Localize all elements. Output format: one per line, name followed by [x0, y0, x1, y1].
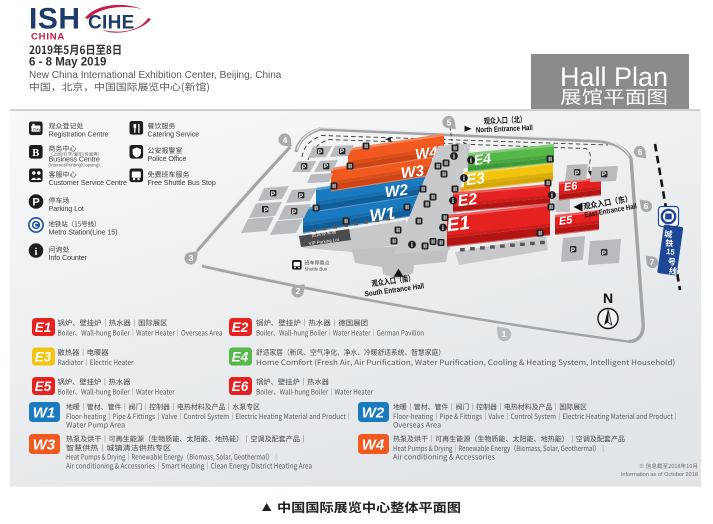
- svg-text:P: P: [575, 170, 579, 177]
- svg-text:i: i: [463, 175, 465, 182]
- svg-text:Parking Lot: Parking Lot: [49, 204, 84, 213]
- svg-text:Catering Service: Catering Service: [148, 129, 200, 138]
- svg-text:7: 7: [650, 257, 655, 267]
- svg-text:2: 2: [296, 286, 301, 296]
- svg-text:i: i: [411, 242, 413, 249]
- svg-text:Free Shuttle Bus Stop: Free Shuttle Bus Stop: [148, 178, 216, 187]
- svg-text:CHINA: CHINA: [31, 32, 65, 43]
- svg-text:E2: E2: [232, 320, 249, 335]
- svg-text:Info Counter: Info Counter: [49, 253, 88, 262]
- svg-text:P: P: [264, 207, 268, 214]
- svg-text:Police Office: Police Office: [148, 154, 187, 163]
- svg-text:E2: E2: [457, 191, 479, 210]
- svg-text:Information as of October 2018: Information as of October 2018: [621, 472, 698, 478]
- svg-text:5: 5: [447, 118, 452, 128]
- svg-text:i: i: [35, 247, 38, 258]
- svg-text:E1: E1: [35, 320, 52, 335]
- svg-text:New China International Exhibi: New China International Exhibition Cente…: [29, 70, 282, 81]
- svg-text:i: i: [551, 192, 553, 199]
- svg-text:P: P: [571, 247, 575, 254]
- svg-text:P: P: [324, 163, 328, 170]
- svg-text:Shuttle Bus: Shuttle Bus: [305, 266, 328, 271]
- svg-text:Registration Centre: Registration Centre: [49, 129, 109, 138]
- svg-text:P: P: [299, 193, 303, 200]
- svg-text:Customer Service Centre: Customer Service Centre: [49, 178, 127, 187]
- svg-text:E4: E4: [232, 350, 249, 365]
- svg-text:6: 6: [638, 147, 643, 157]
- svg-text:6: 6: [644, 201, 649, 211]
- svg-text:N: N: [603, 290, 613, 306]
- svg-text:i: i: [442, 225, 444, 232]
- svg-text:i Day: i Day: [31, 126, 40, 131]
- svg-text:W3: W3: [33, 437, 56, 454]
- svg-text:P: P: [602, 171, 606, 178]
- svg-text:W1: W1: [33, 405, 56, 422]
- svg-text:P: P: [32, 197, 39, 209]
- svg-text:E5: E5: [558, 214, 574, 228]
- svg-text:P: P: [318, 149, 322, 156]
- svg-text:E3: E3: [35, 350, 52, 365]
- svg-text:B: B: [32, 148, 39, 159]
- svg-text:(Internet/Printing/Copying): (Internet/Printing/Copying): [49, 163, 101, 168]
- svg-text:P: P: [302, 164, 306, 171]
- svg-text:E1: E1: [446, 213, 472, 237]
- svg-text:E3: E3: [465, 170, 486, 189]
- svg-text:P: P: [602, 250, 606, 257]
- svg-text:W2: W2: [362, 405, 385, 422]
- svg-text:E5: E5: [35, 379, 52, 394]
- svg-text:P: P: [271, 191, 275, 198]
- svg-text:E6: E6: [563, 180, 579, 194]
- svg-text:P: P: [292, 209, 296, 216]
- svg-text:i: i: [452, 198, 454, 205]
- svg-text:i: i: [453, 153, 455, 160]
- svg-text:i: i: [470, 157, 472, 164]
- svg-text:P: P: [340, 148, 344, 155]
- svg-text:3: 3: [189, 253, 194, 263]
- svg-text:4: 4: [283, 135, 288, 145]
- svg-text:W4: W4: [362, 437, 385, 454]
- svg-text:CIHE: CIHE: [88, 13, 135, 34]
- svg-text:1: 1: [502, 329, 507, 339]
- svg-text:W1: W1: [369, 204, 397, 226]
- svg-text:E6: E6: [232, 379, 249, 394]
- svg-text:6 - 8 May 2019: 6 - 8 May 2019: [29, 57, 106, 69]
- svg-text:W2: W2: [384, 182, 410, 202]
- svg-text:W3: W3: [400, 163, 426, 183]
- svg-text:Metro Station(Line 15): Metro Station(Line 15): [49, 227, 118, 236]
- svg-text:E4: E4: [473, 150, 492, 168]
- svg-text:Hall Plan: Hall Plan: [560, 62, 668, 92]
